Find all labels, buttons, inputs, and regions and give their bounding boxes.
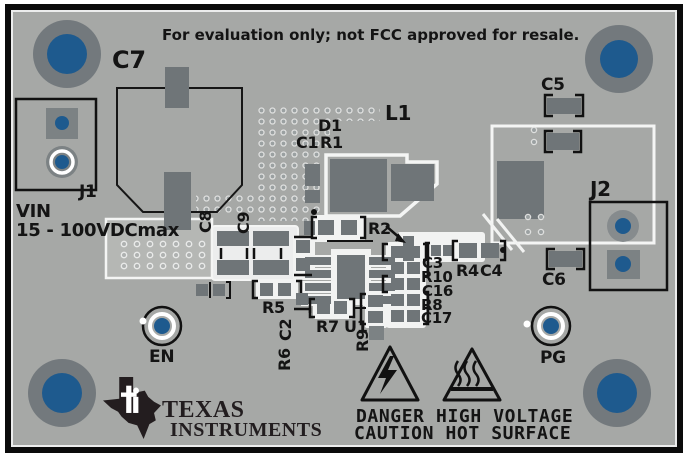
evaluation-banner: For evaluation only; not FCC approved fo…: [162, 28, 579, 43]
label-r5: R5: [262, 300, 285, 316]
high-voltage-icon: [362, 347, 418, 400]
label-r1: R1: [320, 135, 343, 151]
label-r2: R2: [368, 221, 391, 237]
label-vin: VIN: [16, 203, 51, 221]
label-j2: J2: [590, 179, 611, 199]
label-j1: J1: [79, 184, 97, 201]
label-d1: D1: [318, 118, 342, 134]
label-en: EN: [149, 349, 174, 366]
label-c9: C9: [236, 212, 252, 234]
inductor-l1: [305, 155, 437, 216]
testpoint-en: [140, 307, 182, 345]
label-c2: C2: [278, 319, 294, 341]
capacitor-c6: [547, 249, 584, 269]
ti-logo-text-line2: INSTRUMENTS: [170, 420, 322, 440]
hot-surface-icon: [444, 349, 500, 400]
capacitor-c7: [117, 67, 242, 230]
label-vin-range: 15 - 100VDCmax: [16, 222, 179, 240]
label-r7: R7: [316, 319, 339, 335]
ti-logo-icon: [103, 377, 161, 439]
label-c7: C7: [112, 48, 146, 72]
mounting-hole-top-right: [585, 25, 653, 93]
pcb-board-figure: For evaluation only; not FCC approved fo…: [0, 0, 688, 458]
label-c6: C6: [542, 272, 566, 289]
label-c5: C5: [541, 77, 565, 94]
testpoint-pg: [524, 307, 571, 345]
capacitors-c8-c9: [212, 226, 298, 280]
label-r4: R4: [456, 263, 479, 279]
connector-j1: [16, 99, 96, 190]
label-c1: C1: [296, 135, 318, 151]
capacitor-c5: [545, 95, 583, 116]
mounting-hole-bottom-left: [28, 359, 96, 427]
warning-line-2: CAUTION HOT SURFACE: [354, 425, 571, 443]
capacitor-mid: [545, 131, 581, 152]
label-c17: C17: [421, 311, 452, 326]
mounting-hole-bottom-right: [583, 359, 651, 427]
label-r9: R9: [355, 329, 371, 352]
label-r6: R6: [277, 348, 293, 371]
label-pg: PG: [540, 350, 566, 367]
label-l1: L1: [385, 103, 411, 123]
label-c8: C8: [198, 211, 214, 233]
label-c4: C4: [480, 263, 502, 279]
mounting-hole-top-left: [33, 20, 101, 88]
